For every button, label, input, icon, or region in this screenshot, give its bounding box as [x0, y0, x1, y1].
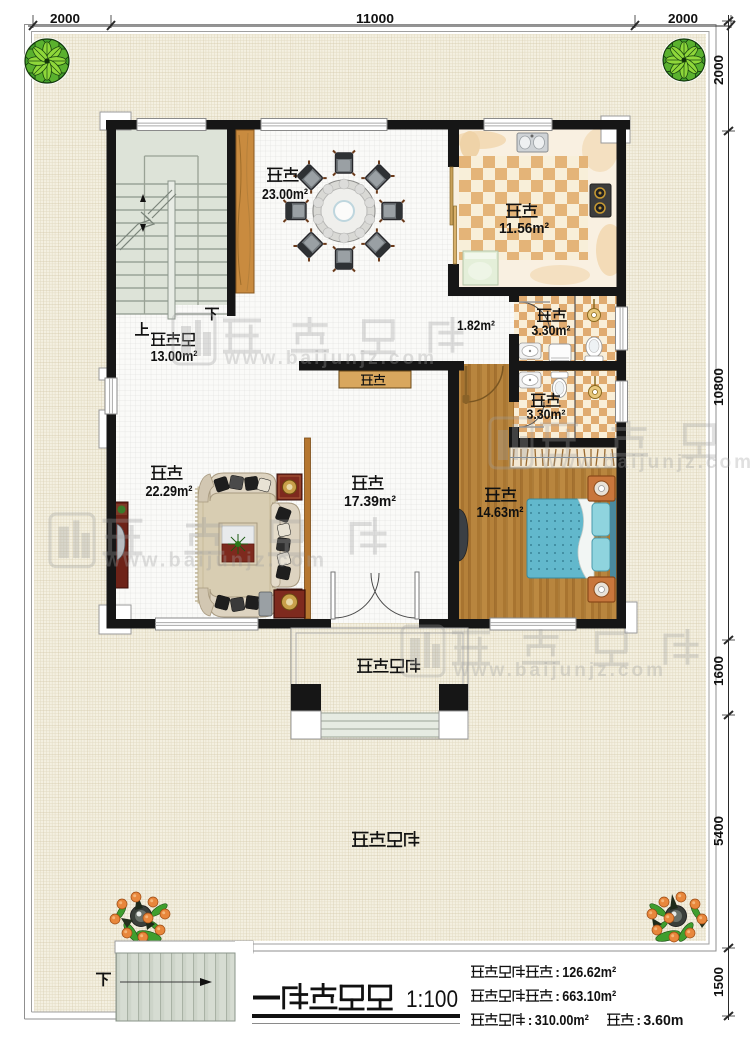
svg-text:310.00m²: 310.00m²	[535, 1012, 589, 1029]
svg-text:3.30m²: 3.30m²	[532, 322, 571, 338]
svg-text:11.56m²: 11.56m²	[499, 220, 549, 237]
svg-text:22.29m²: 22.29m²	[146, 483, 193, 500]
svg-text:2000: 2000	[50, 11, 80, 26]
svg-text:www.baijunjz.com: www.baijunjz.com	[453, 660, 666, 681]
svg-text::: :	[636, 1012, 641, 1028]
svg-text:1500: 1500	[711, 967, 726, 997]
svg-text:3.60m: 3.60m	[643, 1012, 683, 1029]
svg-text:663.10m²: 663.10m²	[562, 988, 616, 1005]
svg-text:5400: 5400	[711, 816, 726, 846]
svg-text:1.82m²: 1.82m²	[457, 317, 495, 333]
svg-text:1:100: 1:100	[406, 986, 458, 1013]
svg-text:17.39m²: 17.39m²	[344, 493, 396, 510]
svg-text::: :	[555, 964, 560, 980]
svg-text:10800: 10800	[711, 368, 726, 406]
svg-text:2000: 2000	[668, 11, 698, 26]
svg-text:www.baijunjz.com: www.baijunjz.com	[541, 452, 750, 473]
svg-text::: :	[555, 988, 560, 1004]
svg-text:1600: 1600	[711, 656, 726, 686]
svg-text:23.00m²: 23.00m²	[262, 186, 308, 203]
svg-text:www.baijunjz.com: www.baijunjz.com	[224, 348, 437, 369]
svg-text:14.63m²: 14.63m²	[477, 504, 524, 521]
svg-text:126.62m²: 126.62m²	[562, 964, 616, 981]
svg-text:2000: 2000	[711, 55, 726, 85]
svg-text:www.baijunjz.com: www.baijunjz.com	[104, 550, 327, 572]
svg-text:3.30m²: 3.30m²	[527, 406, 566, 422]
svg-text::: :	[528, 1012, 533, 1028]
svg-text:11000: 11000	[356, 11, 394, 26]
